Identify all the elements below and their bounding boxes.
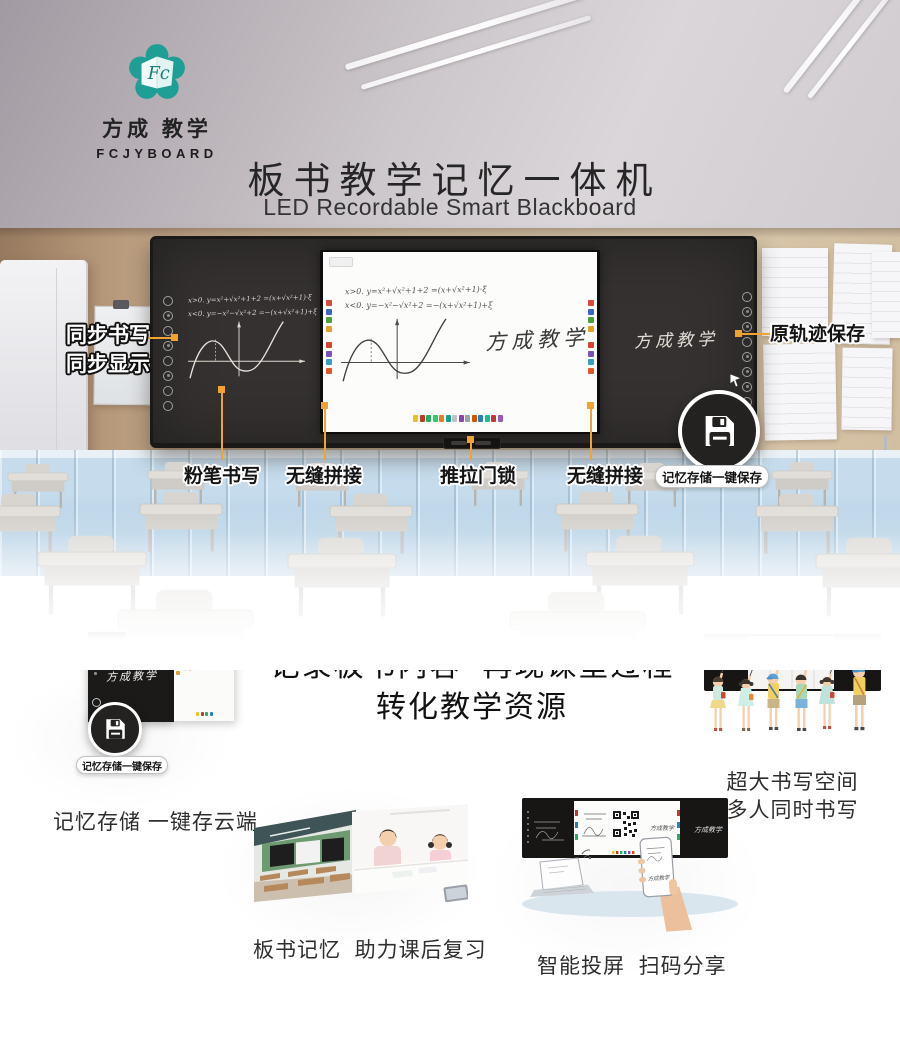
feature-screen-cast-illustration: 方成教学 方成教学 方成教学 xyxy=(512,792,747,932)
brand-block: Fc 方成 教学 FCJYBOARD xyxy=(62,42,252,161)
save-icon-badge xyxy=(678,390,760,472)
pinned-paper xyxy=(841,348,892,431)
ceiling-light-icon xyxy=(782,0,879,94)
tool-icon xyxy=(742,367,752,377)
label-seamless-splicing-1: 无缝拼接 xyxy=(286,461,362,488)
tool-icon xyxy=(163,401,173,411)
tool-icon xyxy=(742,352,752,362)
connector-marker xyxy=(587,402,594,409)
connector-line xyxy=(590,407,592,460)
brand-monogram: Fc xyxy=(147,64,170,84)
screen-left-palette xyxy=(326,300,332,374)
feature-save-icon-badge xyxy=(88,702,142,756)
connector-line xyxy=(470,441,472,460)
board-left-toolbar xyxy=(161,296,175,411)
label-seamless-splicing-2: 无缝拼接 xyxy=(567,461,643,488)
cast-screen-script: 方成教学 xyxy=(650,824,675,832)
screen-formula-2: x<0. y=−x²−√x²+2 =−(x+√x²+1)+ξ xyxy=(345,301,492,310)
tool-icon xyxy=(742,307,752,317)
caption-board-memory: 板书记忆 助力课后复习 xyxy=(253,934,487,964)
save-floppy-icon xyxy=(102,716,128,742)
callout-sync-line2: 同步显示 xyxy=(58,350,158,379)
mini-bottom-toolbar xyxy=(196,712,213,716)
tool-icon xyxy=(163,341,173,351)
screen-menu-button xyxy=(329,257,353,267)
connector-line xyxy=(324,407,326,460)
caption-memory-storage: 记忆存储 一键存云端 xyxy=(53,806,258,836)
feature-save-badge-label: 记忆存储一键保存 xyxy=(76,756,168,774)
tool-icon xyxy=(163,311,173,321)
tool-icon xyxy=(163,386,173,396)
tool-icon xyxy=(742,337,752,347)
label-sliding-door-lock: 推拉门锁 xyxy=(440,461,516,488)
label-chalk-writing: 粉笔书写 xyxy=(184,461,260,488)
callout-sync-line1: 同步书写 xyxy=(58,321,158,350)
screen-brand-script: 方成教学 xyxy=(484,321,589,356)
feature-board-memory-illustration xyxy=(250,804,468,912)
tool-icon xyxy=(163,356,173,366)
brand-name: 方成 教学 xyxy=(62,113,252,143)
connector-line xyxy=(740,333,772,335)
tool-icon xyxy=(742,292,752,302)
tool-icon xyxy=(163,296,173,306)
ceiling-light-icon xyxy=(345,0,586,70)
connector-marker xyxy=(467,436,474,443)
cabinet-seam xyxy=(56,268,57,478)
scene-fade xyxy=(0,505,900,670)
chalk-brand-script: 方成教学 xyxy=(634,325,719,353)
connector-line xyxy=(221,392,223,460)
save-badge-label: 记忆存储一键保存 xyxy=(655,465,769,488)
pinned-paper xyxy=(763,343,837,440)
save-floppy-icon xyxy=(699,411,739,451)
tool-icon xyxy=(163,371,173,381)
tool-icon xyxy=(742,322,752,332)
connector-marker xyxy=(321,402,328,409)
screen-bottom-toolbar xyxy=(413,415,503,422)
connector-marker xyxy=(218,386,225,393)
brand-flower-icon: Fc xyxy=(126,42,188,104)
caption-screen-cast: 智能投屏 扫码分享 xyxy=(537,950,727,980)
callout-track-save: 原轨迹保存 xyxy=(770,320,865,349)
flipchart-clip xyxy=(113,300,129,309)
pinned-paper xyxy=(872,252,900,338)
screen-curve-graph xyxy=(339,310,474,388)
connector-marker xyxy=(171,334,178,341)
touch-screen: x>0. y=x²+√x²+1+2 =(x+√x²+1)·ξ x<0. y=−x… xyxy=(323,252,597,432)
chalk-curve-graph xyxy=(185,316,310,382)
callout-sync-writing: 同步书写 同步显示 xyxy=(58,321,158,379)
tool-icon xyxy=(742,382,752,392)
screen-formula-1: x>0. y=x²+√x²+1+2 =(x+√x²+1)·ξ xyxy=(345,285,487,296)
cursor-icon xyxy=(730,374,742,388)
cast-board-script: 方成教学 xyxy=(694,826,723,834)
page-subtitle: LED Recordable Smart Blackboard xyxy=(0,194,900,221)
poster: Fc 方成 教学 FCJYBOARD 板书教学记忆一体机 LED Recorda… xyxy=(0,0,900,1041)
